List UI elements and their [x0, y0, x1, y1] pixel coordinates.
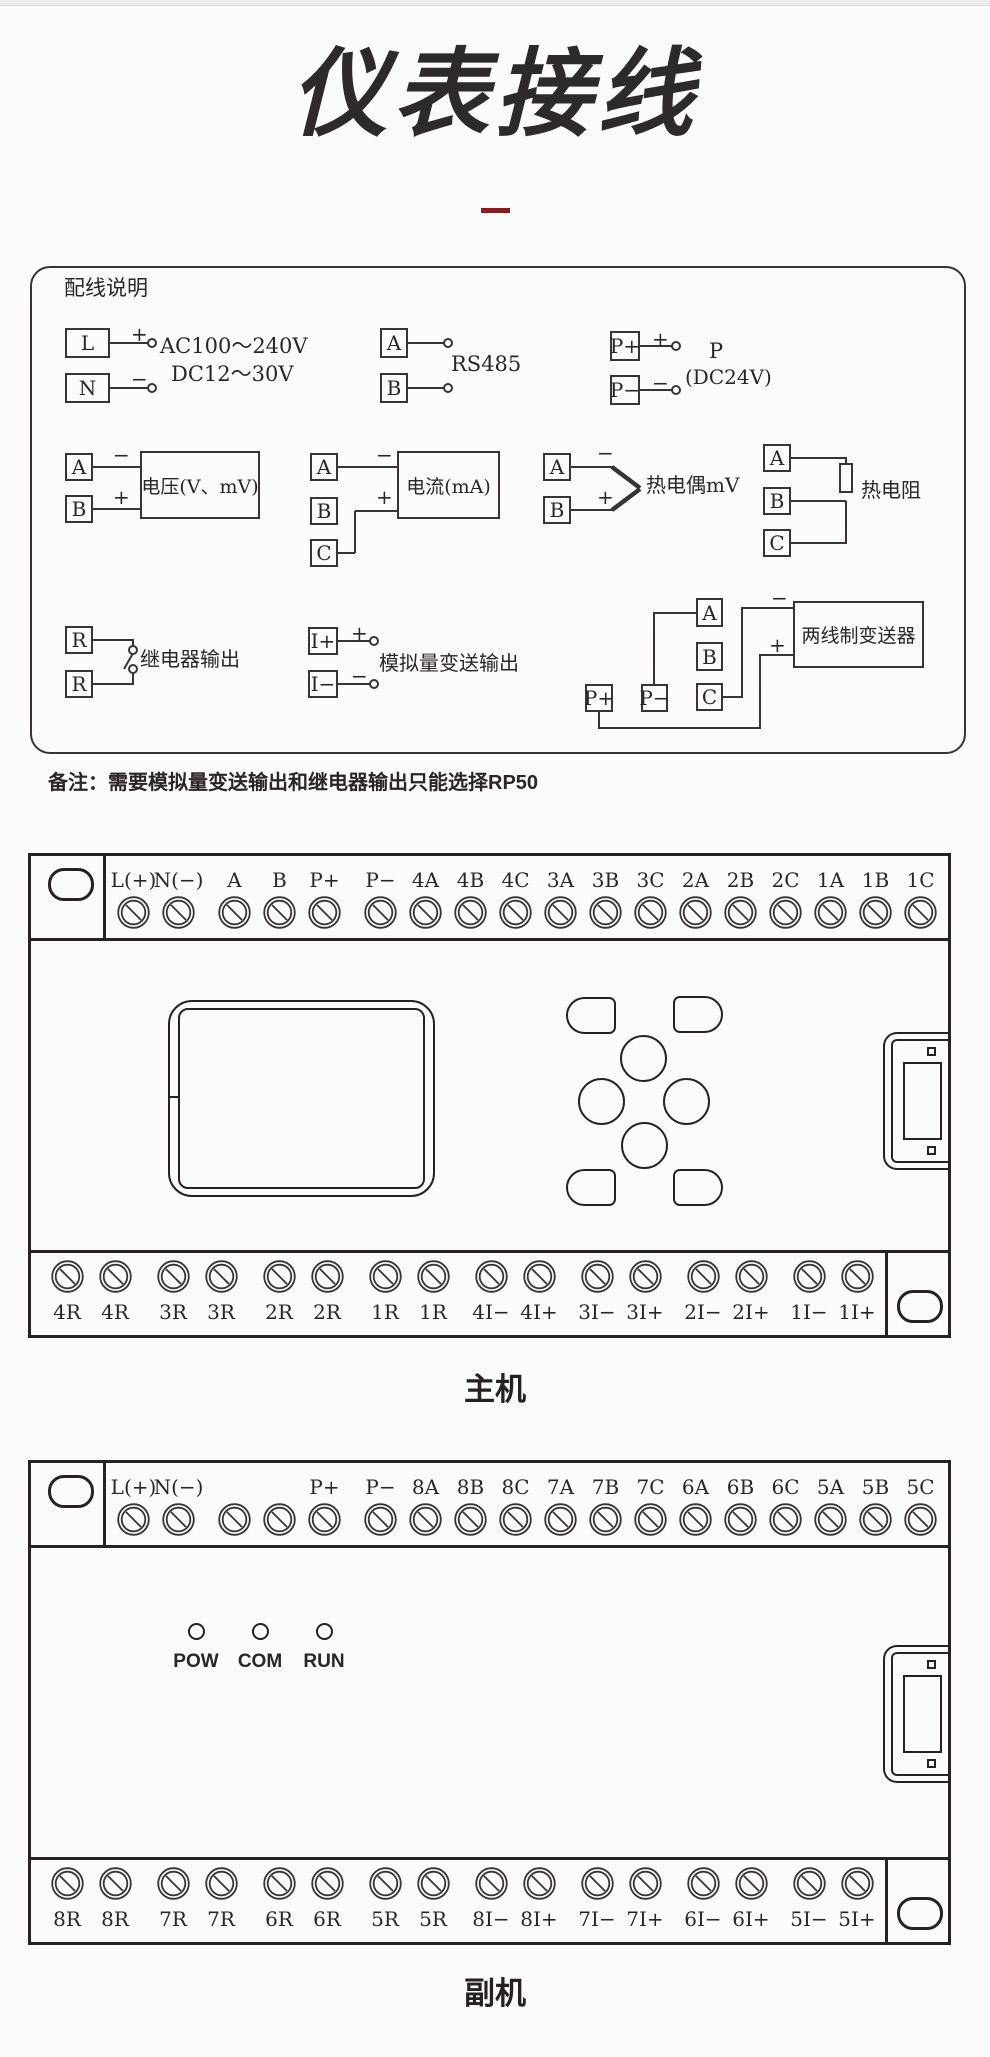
screw-terminal-icon: [634, 896, 667, 929]
terminal: A: [212, 868, 257, 929]
red-divider: [481, 208, 510, 213]
terminal: 7C: [628, 1475, 673, 1536]
terminal: 5C: [898, 1475, 943, 1536]
screw-terminal-icon: [263, 896, 296, 929]
terminal: 2I−: [681, 1260, 725, 1324]
wiring-heading: 配线说明: [64, 276, 148, 300]
terminal-label: 4B: [457, 868, 484, 892]
analog-minus-sign: −: [351, 666, 368, 686]
terminal-label: 4C: [501, 868, 529, 892]
terminal: 6I+: [729, 1867, 773, 1931]
terminal: 3R: [151, 1260, 195, 1324]
terminal-label: 5R: [371, 1907, 399, 1931]
screw-terminal-icon: [475, 1867, 508, 1900]
terminal: 4A: [403, 868, 448, 929]
screw-terminal-icon: [499, 1503, 532, 1536]
page-title: 仪表接线: [0, 40, 990, 150]
terminal-label: 5C: [906, 1475, 934, 1499]
terminal: 2B: [718, 868, 763, 929]
terminal-label: 5A: [817, 1475, 844, 1499]
terminal: L(+): [111, 868, 156, 929]
analog-plus-sign: +: [351, 623, 368, 643]
main-top-left-cell-divider: [103, 856, 106, 938]
terminal: 5I−: [787, 1867, 831, 1931]
screw-terminal-icon: [735, 1867, 768, 1900]
terminal: 7R: [199, 1867, 243, 1931]
screw-terminal-icon: [364, 1503, 397, 1536]
terminal: 6A: [673, 1475, 718, 1536]
screw-terminal-icon: [499, 896, 532, 929]
terminal-label: 2I−: [684, 1300, 721, 1324]
terminal: 4R: [45, 1260, 89, 1324]
side-connector: [883, 1645, 948, 1783]
terminal-label: 2A: [682, 868, 709, 892]
terminal: 8I−: [469, 1867, 513, 1931]
terminal-box-tx-A: A: [696, 598, 723, 627]
terminal-label: 1C: [906, 868, 934, 892]
terminal: 7A: [538, 1475, 583, 1536]
analog-out-label: 模拟量变送输出: [379, 652, 519, 675]
terminal-label: 5I+: [838, 1907, 875, 1931]
screw-terminal-icon: [769, 1503, 802, 1536]
keypad-button-bottom-left: [566, 1169, 616, 1206]
terminal: P−: [358, 868, 403, 929]
page-top-bar: [0, 0, 990, 6]
terminal-label: P−: [365, 1475, 395, 1499]
terminal-label: 3R: [207, 1300, 235, 1324]
screw-terminal-icon: [814, 1503, 847, 1536]
screw-terminal-icon: [724, 1503, 757, 1536]
current-input-label: 电流(mA): [397, 451, 500, 519]
terminal-box-tc-B: B: [543, 496, 571, 524]
screw-terminal-icon: [793, 1260, 826, 1293]
terminal: 7I−: [575, 1867, 619, 1931]
screw-terminal-icon: [724, 896, 757, 929]
secondary-unit-caption: 副机: [0, 1968, 990, 2013]
terminal-label: 6I−: [684, 1907, 721, 1931]
led-indicator-icon: [188, 1623, 205, 1640]
aux-power-plus-sign: +: [652, 329, 669, 349]
main-unit-diagram: L(+) N(−): [28, 853, 951, 1338]
terminal-label: 4R: [101, 1300, 129, 1324]
terminal: 4I−: [469, 1260, 513, 1324]
terminal: 4B: [448, 868, 493, 929]
terminal: 4R: [93, 1260, 137, 1324]
terminal: 1I+: [835, 1260, 879, 1324]
screw-terminal-icon: [263, 1503, 296, 1536]
screw-terminal-icon: [859, 1503, 892, 1536]
terminal-label: 1I+: [838, 1300, 875, 1324]
terminal: 5R: [411, 1867, 455, 1931]
screw-terminal-icon: [311, 1260, 344, 1293]
screw-terminal-icon: [311, 1867, 344, 1900]
rs485-label: RS485: [451, 352, 521, 376]
terminal-label: L(+): [111, 1475, 157, 1499]
screw-terminal-icon: [904, 896, 937, 929]
screw-terminal-icon: [157, 1260, 190, 1293]
terminal: 8R: [45, 1867, 89, 1931]
status-led-row: POW COM RUN: [164, 1623, 356, 1673]
terminal-label: 8I+: [520, 1907, 557, 1931]
main-bottom-mounting-hole: [897, 1290, 943, 1323]
screw-terminal-icon: [735, 1260, 768, 1293]
keypad-button-down: [621, 1122, 668, 1169]
terminal: 1I−: [787, 1260, 831, 1324]
terminal: 2A: [673, 868, 718, 929]
terminal-box-rtd-A: A: [763, 444, 791, 472]
terminal-box-I-plus: I+: [308, 627, 338, 655]
screw-terminal-icon: [99, 1867, 132, 1900]
terminal: 1B: [853, 868, 898, 929]
terminal: 1A: [808, 868, 853, 929]
terminal-label: 7R: [159, 1907, 187, 1931]
terminal-label: 4A: [412, 868, 439, 892]
screw-terminal-icon: [218, 1503, 251, 1536]
screw-terminal-icon: [769, 896, 802, 929]
screw-terminal-icon: [841, 1867, 874, 1900]
terminal-box-P-minus: P−: [610, 375, 640, 405]
screw-terminal-icon: [544, 1503, 577, 1536]
screw-terminal-icon: [308, 896, 341, 929]
terminal-box-tc-A: A: [543, 453, 571, 481]
screw-terminal-icon: [369, 1867, 402, 1900]
terminal: 8I+: [517, 1867, 561, 1931]
screw-terminal-icon: [475, 1260, 508, 1293]
terminal: 7R: [151, 1867, 195, 1931]
terminal: 3R: [199, 1260, 243, 1324]
terminal-box-relay-R1: R: [65, 626, 93, 654]
terminal-label: 2I+: [732, 1300, 769, 1324]
keypad-button-top-left: [566, 997, 616, 1034]
terminal-label: L(+): [111, 868, 157, 892]
terminal-box-relay-R2: R: [65, 670, 93, 698]
terminal-label: 8A: [412, 1475, 439, 1499]
terminal-label: 5B: [862, 1475, 889, 1499]
terminal-label: 6I+: [732, 1907, 769, 1931]
screw-terminal-icon: [454, 1503, 487, 1536]
terminal-label: P+: [309, 1475, 339, 1499]
main-bottom-terminal-row: 4R 4R 3R: [45, 1260, 879, 1324]
led-label: RUN: [303, 1651, 344, 1673]
keypad-button-left: [578, 1078, 625, 1125]
terminal: P+: [302, 868, 347, 929]
aux-power-minus-sign: −: [652, 373, 669, 393]
terminal: 3B: [583, 868, 628, 929]
secondary-top-left-cell-divider: [103, 1463, 106, 1545]
terminal: 3C: [628, 868, 673, 929]
terminal-label: 2B: [727, 868, 754, 892]
tx-plus-sign: +: [769, 635, 786, 655]
terminal-box-current-A: A: [310, 453, 338, 481]
terminal-label: 6B: [727, 1475, 754, 1499]
terminal-label: 8R: [53, 1907, 81, 1931]
terminal-label: 5I−: [790, 1907, 827, 1931]
screw-terminal-icon: [263, 1867, 296, 1900]
connector-notch-top: [927, 1047, 936, 1056]
current-plus-sign: +: [376, 487, 393, 507]
power-voltage-ac: AC100～240V: [160, 334, 308, 358]
terminal-label: 4I+: [520, 1300, 557, 1324]
screw-terminal-icon: [218, 896, 251, 929]
screw-terminal-icon: [162, 1503, 195, 1536]
screw-terminal-icon: [634, 1503, 667, 1536]
terminal: 2R: [305, 1260, 349, 1324]
terminal: [212, 1475, 257, 1536]
terminal: 8C: [493, 1475, 538, 1536]
screw-terminal-icon: [454, 896, 487, 929]
rtd-label: 热电阻: [861, 479, 921, 502]
terminal: N(−): [156, 868, 201, 929]
terminal-box-L: L: [65, 328, 110, 358]
terminal: P+: [302, 1475, 347, 1536]
terminal-label: 1R: [371, 1300, 399, 1324]
terminal: 3I+: [623, 1260, 667, 1324]
terminal-box-tx-C: C: [696, 683, 723, 711]
main-bottom-right-cell-divider: [885, 1250, 888, 1335]
screw-terminal-icon: [581, 1867, 614, 1900]
led-indicator-icon: [316, 1623, 333, 1640]
screw-terminal-icon: [679, 896, 712, 929]
terminal-box-N: N: [65, 373, 110, 403]
terminal: 2R: [257, 1260, 301, 1324]
terminal-label: 7C: [636, 1475, 664, 1499]
terminal-label: 8I−: [472, 1907, 509, 1931]
terminal: 8A: [403, 1475, 448, 1536]
terminal: P−: [358, 1475, 403, 1536]
terminal: L(+): [111, 1475, 156, 1536]
screw-terminal-icon: [364, 896, 397, 929]
screw-terminal-icon: [417, 1260, 450, 1293]
screw-terminal-icon: [581, 1260, 614, 1293]
screw-terminal-icon: [162, 896, 195, 929]
keypad-button-up: [620, 1035, 667, 1082]
screw-terminal-icon: [409, 1503, 442, 1536]
terminal: [257, 1475, 302, 1536]
terminal: 8B: [448, 1475, 493, 1536]
screw-terminal-icon: [679, 1503, 712, 1536]
terminal: 3I−: [575, 1260, 619, 1324]
terminal-label: 3I−: [578, 1300, 615, 1324]
terminal-box-rtd-B: B: [763, 487, 791, 515]
screw-terminal-icon: [589, 1503, 622, 1536]
terminal-label: 7I−: [578, 1907, 615, 1931]
status-led: POW: [164, 1623, 228, 1673]
terminal: 7B: [583, 1475, 628, 1536]
terminal-label: 4R: [53, 1300, 81, 1324]
screw-terminal-icon: [814, 896, 847, 929]
terminal-label: 4I−: [472, 1300, 509, 1324]
screw-terminal-icon: [99, 1260, 132, 1293]
terminal-label: 8B: [457, 1475, 484, 1499]
keypad-button-top-right: [673, 996, 723, 1033]
screw-terminal-icon: [523, 1867, 556, 1900]
secondary-bottom-terminal-row: 8R 8R 7R: [45, 1867, 879, 1931]
terminal-label: B: [272, 868, 287, 892]
status-led: RUN: [292, 1623, 356, 1673]
terminal: 4C: [493, 868, 538, 929]
terminal-label: 6R: [313, 1907, 341, 1931]
terminal-label: 6C: [771, 1475, 799, 1499]
terminal: 5R: [363, 1867, 407, 1931]
terminal: 6R: [305, 1867, 349, 1931]
screw-terminal-icon: [51, 1260, 84, 1293]
terminal-box-tx-P-plus: P+: [585, 684, 613, 712]
screw-terminal-icon: [205, 1260, 238, 1293]
display-bezel-notch: [168, 1096, 178, 1098]
terminal: 7I+: [623, 1867, 667, 1931]
screw-terminal-icon: [51, 1867, 84, 1900]
terminal-label: 1R: [419, 1300, 447, 1324]
screw-terminal-icon: [793, 1867, 826, 1900]
terminal-label: 3A: [547, 868, 574, 892]
terminal-label: 1A: [817, 868, 844, 892]
thermocouple-label: 热电偶mV: [646, 474, 739, 497]
terminal-label: 2R: [265, 1300, 293, 1324]
led-label: POW: [173, 1651, 218, 1673]
screw-terminal-icon: [417, 1867, 450, 1900]
terminal-box-P-plus: P+: [610, 331, 640, 361]
terminal-label: 3B: [592, 868, 619, 892]
keypad-button-right: [663, 1078, 710, 1125]
secondary-unit-diagram: L(+) N(−): [28, 1460, 951, 1945]
led-label: COM: [238, 1651, 282, 1673]
terminal: 1R: [363, 1260, 407, 1324]
screw-terminal-icon: [687, 1260, 720, 1293]
terminal-label: 6R: [265, 1907, 293, 1931]
connector-slot: [903, 1675, 942, 1753]
terminal-label: 7A: [547, 1475, 574, 1499]
voltage-plus-sign: +: [113, 487, 130, 507]
display-screen: [178, 1008, 425, 1189]
note-text: 备注：需要模拟量变送输出和继电器输出只能选择RP50: [48, 766, 538, 795]
terminal: 5B: [853, 1475, 898, 1536]
terminal: N(−): [156, 1475, 201, 1536]
terminal-label: 7I+: [626, 1907, 663, 1931]
page: 仪表接线 配线说明 L N + − AC100～240V DC12～30V A …: [0, 0, 990, 2057]
screw-terminal-icon: [841, 1260, 874, 1293]
main-unit-caption: 主机: [0, 1364, 990, 1409]
tx-minus-sign: −: [771, 588, 788, 608]
connector-slot: [903, 1062, 942, 1140]
secondary-bottom-right-cell-divider: [885, 1857, 888, 1942]
terminal-box-current-C: C: [310, 539, 338, 567]
power-minus-sign: −: [131, 369, 148, 389]
connector-notch-bottom: [927, 1146, 936, 1155]
aux-power-volts: (DC24V): [685, 366, 772, 389]
terminal-label: P−: [365, 868, 395, 892]
current-minus-sign: −: [376, 445, 393, 465]
terminal-box-current-B: B: [310, 497, 338, 525]
screw-terminal-icon: [157, 1867, 190, 1900]
screw-terminal-icon: [544, 896, 577, 929]
transmitter-label: 两线制变送器: [793, 601, 924, 668]
status-led: COM: [228, 1623, 292, 1673]
tc-plus-sign: +: [597, 487, 614, 507]
terminal-label: 8C: [501, 1475, 529, 1499]
screw-terminal-icon: [629, 1867, 662, 1900]
terminal-label: N(−): [154, 1475, 204, 1499]
screw-terminal-icon: [409, 896, 442, 929]
relay-label: 继电器输出: [140, 648, 240, 671]
terminal-box-tx-P-minus: P−: [641, 684, 668, 712]
main-top-terminal-row: L(+) N(−): [111, 868, 943, 929]
terminal-label: A: [227, 868, 241, 892]
screw-terminal-icon: [308, 1503, 341, 1536]
connector-notch-top: [927, 1660, 936, 1669]
screw-terminal-icon: [263, 1260, 296, 1293]
terminal: 5A: [808, 1475, 853, 1536]
keypad-button-bottom-right: [673, 1169, 723, 1206]
screw-terminal-icon: [859, 896, 892, 929]
terminal-label: 1B: [862, 868, 889, 892]
screw-terminal-icon: [687, 1867, 720, 1900]
terminal: 6I−: [681, 1867, 725, 1931]
screw-terminal-icon: [629, 1260, 662, 1293]
aux-power-name: P: [709, 339, 723, 363]
terminal-label: N(−): [154, 868, 204, 892]
screw-terminal-icon: [205, 1867, 238, 1900]
terminal-label: 5R: [419, 1907, 447, 1931]
terminal: 6R: [257, 1867, 301, 1931]
connector-notch-bottom: [927, 1759, 936, 1768]
terminal-label: 3I+: [626, 1300, 663, 1324]
terminal-box-rs485-A: A: [380, 328, 408, 358]
terminal: B: [257, 868, 302, 929]
voltage-minus-sign: −: [113, 445, 130, 465]
side-connector: [883, 1032, 948, 1170]
terminal-box-I-minus: I−: [308, 670, 338, 698]
secondary-top-terminal-row: L(+) N(−): [111, 1475, 943, 1536]
secondary-bottom-mounting-hole: [897, 1897, 943, 1930]
screw-terminal-icon: [904, 1503, 937, 1536]
terminal-box-tx-B: B: [696, 642, 723, 671]
terminal-box-rs485-B: B: [380, 373, 408, 403]
terminal-box-voltage-B: B: [65, 495, 93, 523]
terminal: 8R: [93, 1867, 137, 1931]
screw-terminal-icon: [117, 896, 150, 929]
terminal-label: 3R: [159, 1300, 187, 1324]
terminal-label: 3C: [636, 868, 664, 892]
terminal-box-rtd-C: C: [763, 529, 791, 557]
terminal: 2I+: [729, 1260, 773, 1324]
terminal: 2C: [763, 868, 808, 929]
tc-minus-sign: −: [597, 443, 614, 463]
terminal-label: 6A: [682, 1475, 709, 1499]
main-top-mounting-hole: [48, 868, 94, 901]
terminal: 6C: [763, 1475, 808, 1536]
terminal: 1R: [411, 1260, 455, 1324]
terminal: 1C: [898, 868, 943, 929]
terminal-label: 7R: [207, 1907, 235, 1931]
terminal: 3A: [538, 868, 583, 929]
terminal-label: 1I−: [790, 1300, 827, 1324]
terminal: 5I+: [835, 1867, 879, 1931]
terminal-label: 7B: [592, 1475, 619, 1499]
terminal-label: 8R: [101, 1907, 129, 1931]
terminal-box-voltage-A: A: [65, 453, 93, 481]
terminal: 6B: [718, 1475, 763, 1536]
voltage-input-label: 电压(V、mV): [140, 451, 260, 519]
terminal: 4I+: [517, 1260, 561, 1324]
screw-terminal-icon: [523, 1260, 556, 1293]
terminal-label: 2R: [313, 1300, 341, 1324]
power-plus-sign: +: [131, 324, 148, 344]
terminal-label: P+: [309, 868, 339, 892]
screw-terminal-icon: [117, 1503, 150, 1536]
terminal-label: 2C: [771, 868, 799, 892]
screw-terminal-icon: [369, 1260, 402, 1293]
power-voltage-dc: DC12～30V: [171, 362, 294, 386]
